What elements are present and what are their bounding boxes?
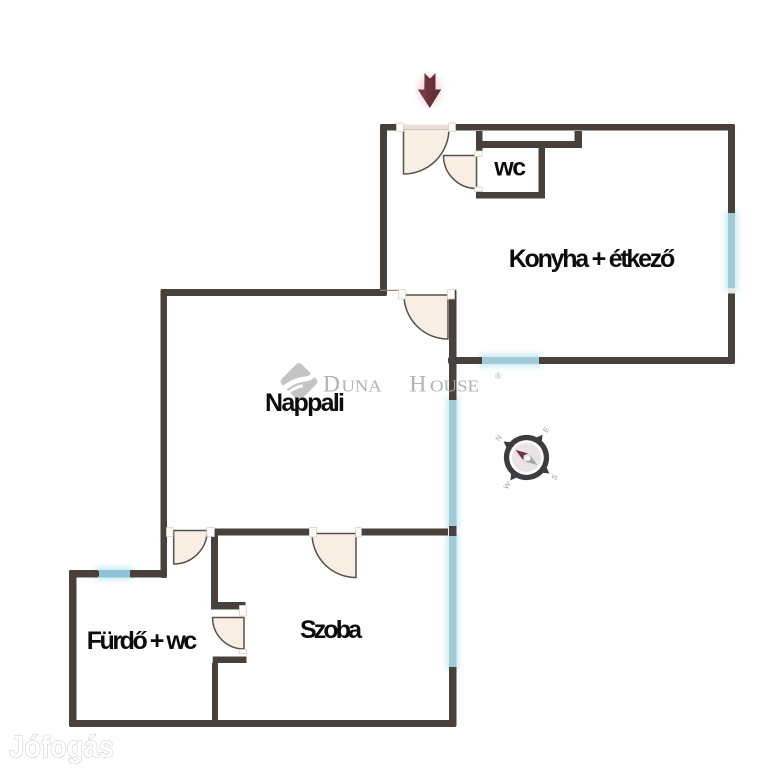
svg-text:UNA: UNA [342, 377, 383, 396]
svg-text:S: S [549, 473, 559, 482]
svg-text:N: N [493, 433, 503, 443]
svg-text:Konyha + étkező: Konyha + étkező [509, 245, 676, 273]
svg-text:Jófogás: Jófogás [9, 729, 114, 764]
svg-text:wc: wc [493, 154, 526, 182]
svg-text:H: H [409, 372, 426, 398]
svg-text:W: W [501, 479, 513, 491]
svg-text:OUSE: OUSE [430, 377, 479, 396]
svg-text:®: ® [495, 371, 502, 382]
svg-text:Fürdő + wc: Fürdő + wc [87, 627, 198, 655]
svg-text:Nappali: Nappali [265, 389, 345, 417]
svg-text:E: E [541, 425, 551, 434]
svg-text:Szoba: Szoba [300, 616, 363, 644]
